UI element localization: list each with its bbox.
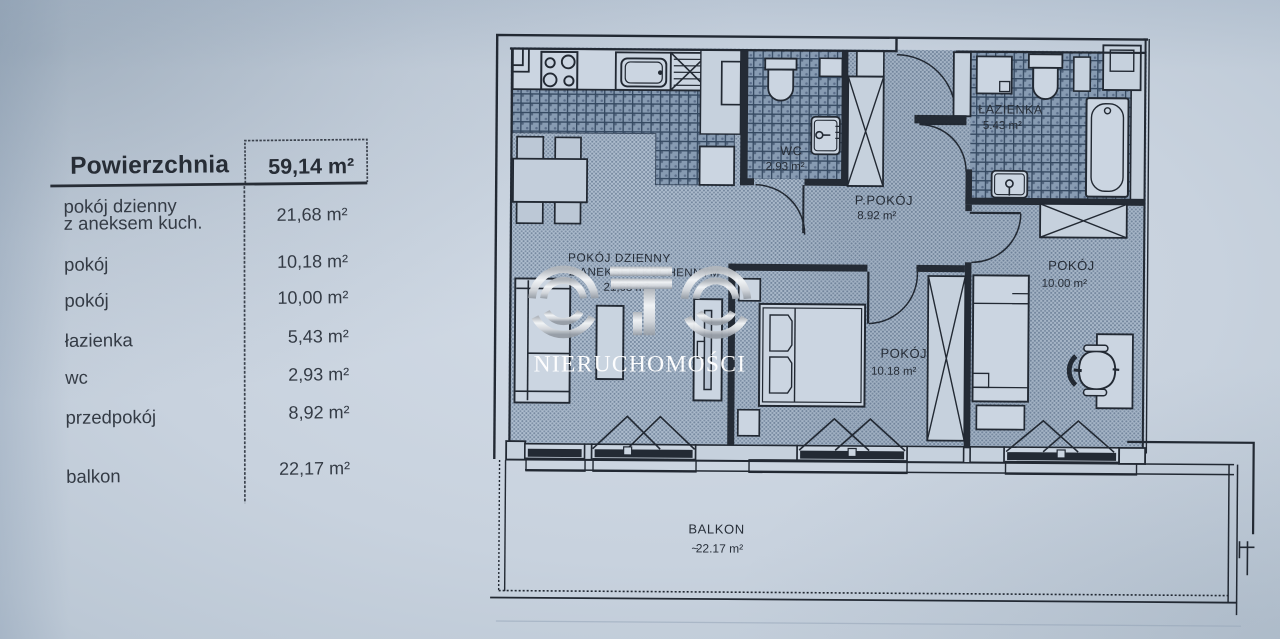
- svg-text:5.43 m²: 5.43 m²: [983, 120, 1022, 132]
- svg-text:10,00 m²: 10,00 m²: [277, 287, 348, 308]
- svg-text:wc: wc: [64, 367, 88, 388]
- svg-text:10.00 m²: 10.00 m²: [1042, 278, 1088, 290]
- svg-text:ŁAZIENKA: ŁAZIENKA: [978, 102, 1043, 116]
- svg-text:POKÓJ DZIENNY: POKÓJ DZIENNY: [568, 251, 671, 266]
- svg-text:10.18 m²: 10.18 m²: [871, 366, 917, 378]
- svg-text:22,17 m²: 22,17 m²: [279, 458, 350, 479]
- svg-text:łazienka: łazienka: [65, 329, 134, 351]
- svg-text:2.93 m²: 2.93 m²: [766, 161, 805, 173]
- svg-text:NIERUCHOMOŚCI: NIERUCHOMOŚCI: [534, 351, 747, 378]
- svg-text:z aneksem kuch.: z aneksem kuch.: [64, 212, 203, 234]
- svg-text:pokój: pokój: [64, 253, 108, 274]
- svg-text:21,68 m²: 21,68 m²: [276, 204, 347, 225]
- svg-text:WC: WC: [780, 144, 802, 158]
- svg-text:10,18 m²: 10,18 m²: [277, 251, 348, 272]
- svg-text:POKÓJ: POKÓJ: [880, 346, 927, 361]
- svg-text:BALKON: BALKON: [688, 521, 744, 536]
- svg-text:59,14 m²: 59,14 m²: [268, 154, 354, 179]
- svg-text:8.92 m²: 8.92 m²: [857, 210, 896, 222]
- svg-text:POKÓJ: POKÓJ: [1048, 258, 1095, 273]
- svg-text:8,92 m²: 8,92 m²: [288, 402, 349, 423]
- svg-text:balkon: balkon: [66, 465, 121, 487]
- svg-text:pokój: pokój: [64, 289, 108, 310]
- svg-text:Powierzchnia: Powierzchnia: [70, 151, 229, 180]
- svg-text:2,93 m²: 2,93 m²: [288, 364, 349, 385]
- svg-text:5,43 m²: 5,43 m²: [288, 326, 349, 347]
- svg-text:22.17 m²: 22.17 m²: [696, 541, 743, 555]
- svg-text:przedpokój: przedpokój: [65, 406, 156, 428]
- svg-text:P.POKÓJ: P.POKÓJ: [855, 193, 913, 208]
